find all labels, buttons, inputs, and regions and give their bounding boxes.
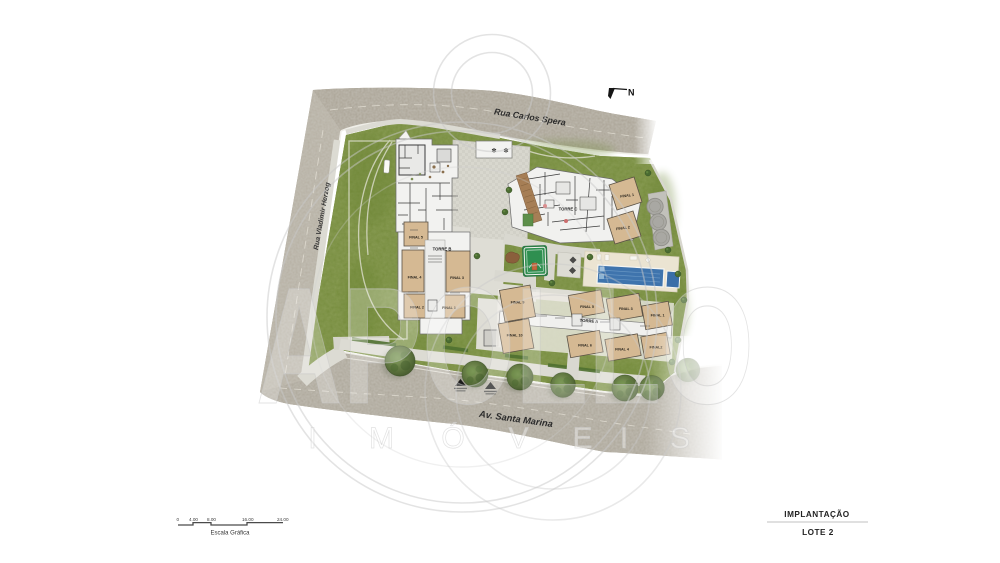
svg-text:Escala Gráfica: Escala Gráfica — [210, 531, 250, 537]
svg-text:LOTE 2: LOTE 2 — [802, 528, 834, 537]
svg-text:Ó: Ó — [441, 422, 464, 455]
svg-text:IMPLANTAÇÃO: IMPLANTAÇÃO — [784, 509, 850, 519]
svg-text:S: S — [670, 422, 690, 455]
svg-text:24.00: 24.00 — [277, 517, 289, 522]
svg-text:APOLLO: APOLLO — [256, 253, 754, 439]
svg-text:I: I — [308, 422, 316, 455]
svg-text:16.00: 16.00 — [242, 517, 254, 522]
svg-text:N: N — [628, 88, 635, 98]
svg-text:FINAL 5: FINAL 5 — [409, 236, 423, 240]
svg-text:0: 0 — [177, 517, 180, 522]
svg-text:4.00: 4.00 — [189, 517, 198, 522]
svg-text:M: M — [369, 422, 394, 455]
svg-text:I: I — [620, 422, 628, 455]
svg-text:E: E — [572, 422, 592, 455]
svg-text:V: V — [508, 422, 528, 455]
svg-text:8.00: 8.00 — [207, 517, 216, 522]
svg-text:TORRE B: TORRE B — [433, 246, 452, 251]
